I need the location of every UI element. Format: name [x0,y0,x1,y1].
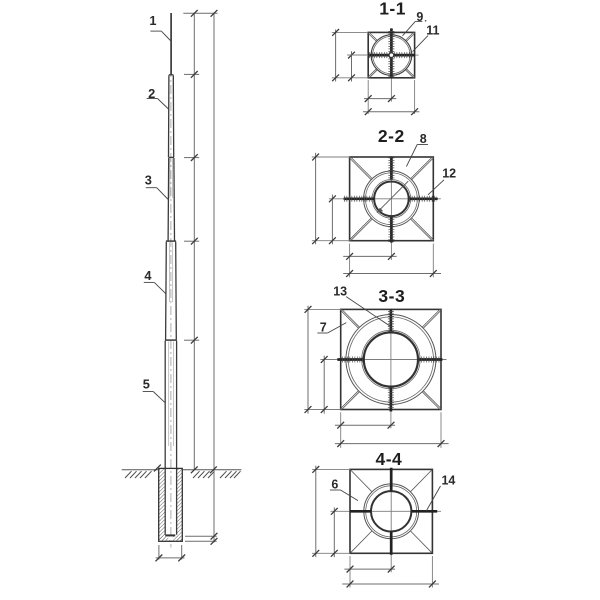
svg-text:5: 5 [143,377,150,392]
svg-text:13: 13 [333,284,347,298]
svg-text:4: 4 [144,268,152,283]
svg-text:1-1: 1-1 [379,0,406,19]
svg-text:2-2: 2-2 [378,126,405,146]
svg-text:8: 8 [420,132,427,146]
svg-text:14: 14 [441,473,455,487]
svg-text:7: 7 [320,321,327,335]
svg-text:11: 11 [426,23,439,37]
svg-text:9: 9 [416,10,423,24]
svg-text:2: 2 [148,86,155,101]
svg-text:1: 1 [149,13,156,28]
svg-text:6: 6 [331,478,338,492]
svg-text:3-3: 3-3 [378,286,405,306]
svg-text:3: 3 [145,173,152,188]
svg-text:4-4: 4-4 [376,449,403,469]
svg-text:12: 12 [442,167,456,181]
